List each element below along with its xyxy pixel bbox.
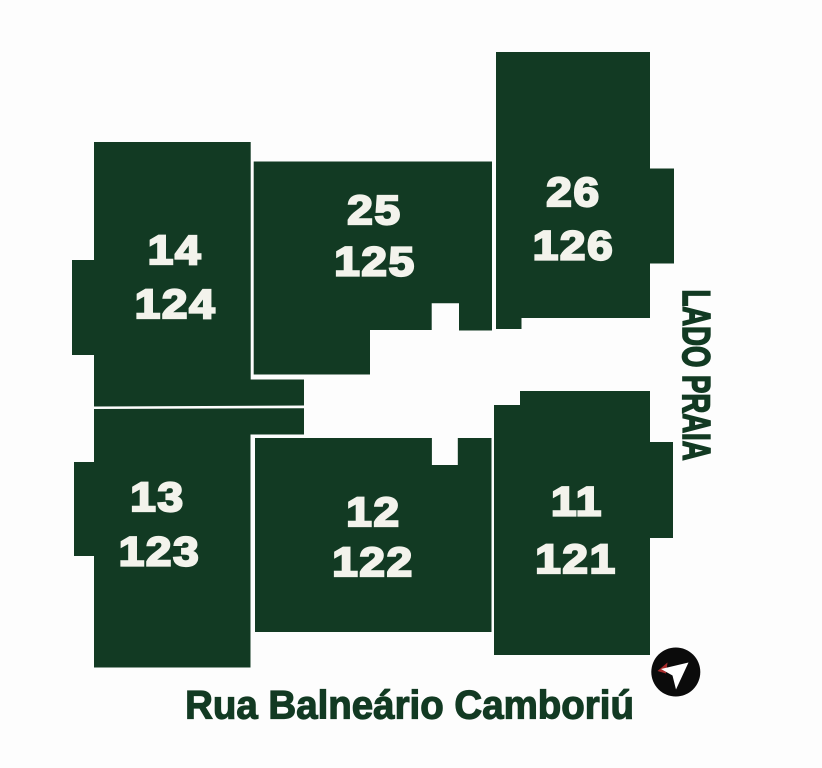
svg-text:12: 12 bbox=[346, 490, 400, 535]
svg-text:124: 124 bbox=[135, 282, 217, 327]
svg-text:14: 14 bbox=[148, 228, 202, 273]
svg-text:123: 123 bbox=[119, 530, 201, 575]
svg-text:122: 122 bbox=[332, 540, 414, 585]
svg-text:26: 26 bbox=[546, 170, 600, 215]
svg-text:LADO PRAIA: LADO PRAIA bbox=[674, 290, 718, 461]
svg-text:11: 11 bbox=[551, 480, 603, 525]
svg-text:121: 121 bbox=[535, 537, 617, 582]
svg-text:Rua Balneário Camboriú: Rua Balneário Camboriú bbox=[185, 683, 634, 728]
svg-text:126: 126 bbox=[533, 224, 615, 269]
svg-text:13: 13 bbox=[130, 475, 184, 520]
svg-text:125: 125 bbox=[334, 240, 416, 285]
svg-text:25: 25 bbox=[347, 188, 401, 233]
